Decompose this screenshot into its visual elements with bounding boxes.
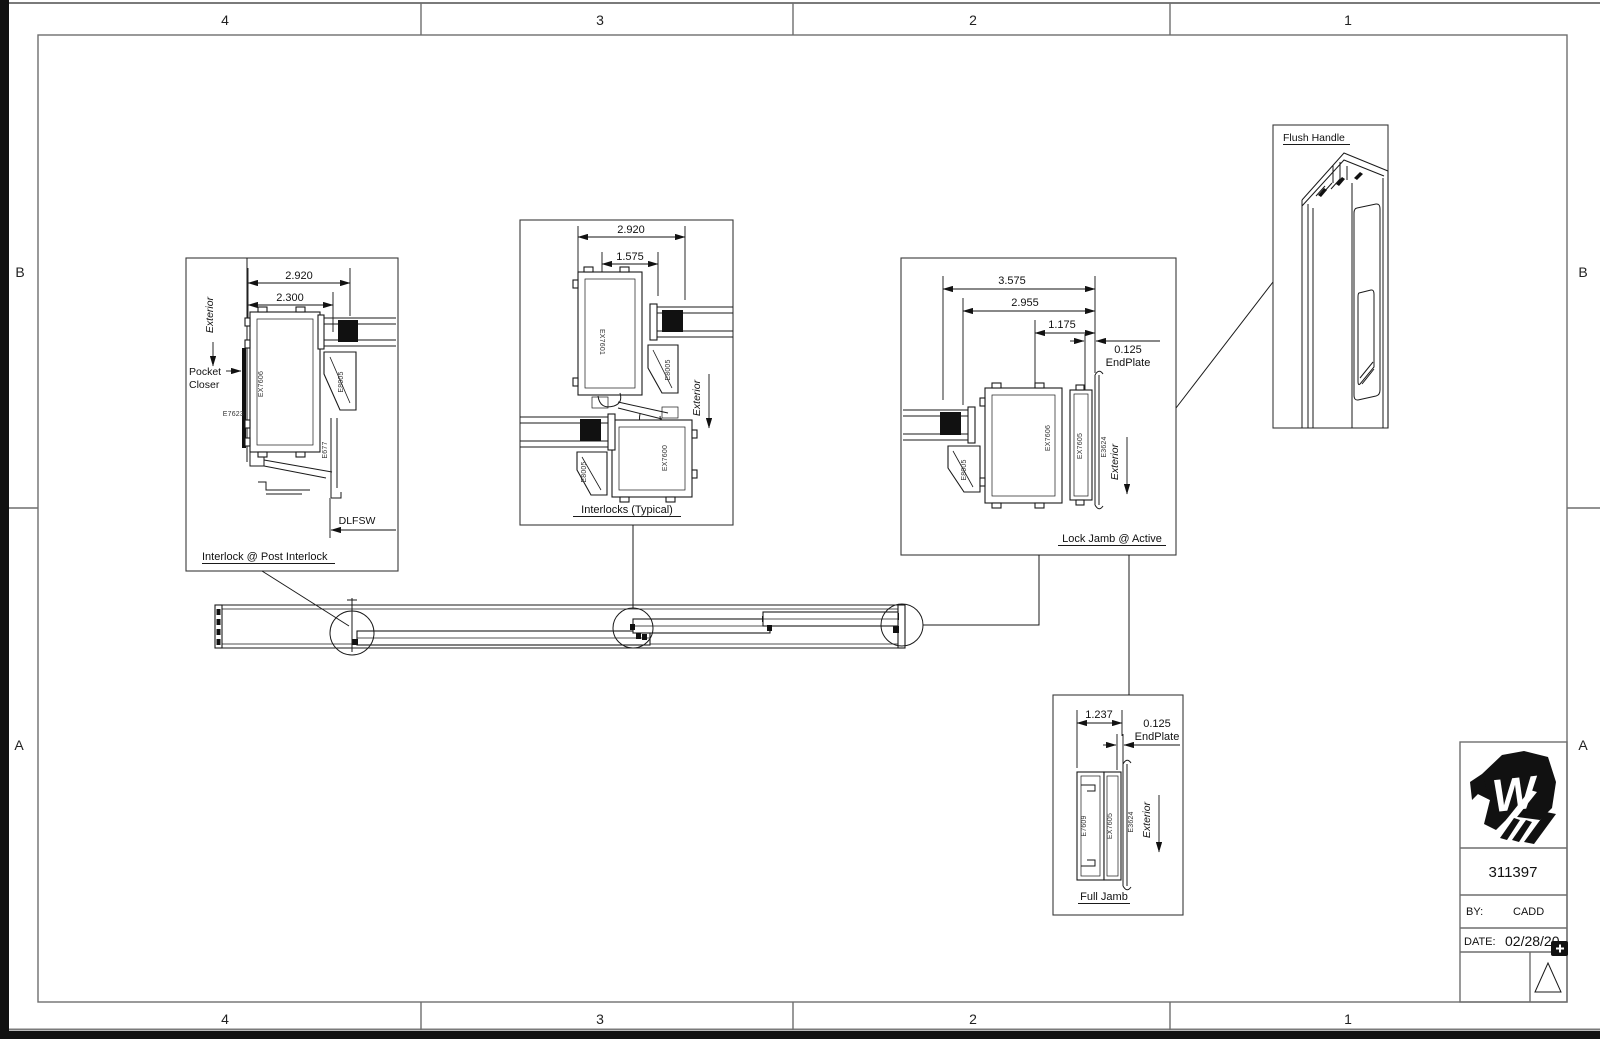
detail-post-interlock: 2.920 2.300 Exterior EX7606 E8005 E677 P…	[186, 258, 398, 571]
dim-lock-mid: 2.955	[1011, 297, 1039, 309]
zone-right-b: B	[1578, 264, 1587, 280]
drawing-sheet: 4 3 2 1 4 3 2 1 B A B A 2.920 2.300 Exte…	[0, 0, 1600, 1039]
part-label-e677: E677	[322, 441, 329, 458]
part-label-e7609: E7609	[1081, 815, 1088, 836]
part-label-e3624-lock: E3624	[1101, 436, 1108, 457]
by-value: CADD	[1513, 906, 1544, 918]
drawing-number: 311397	[1489, 864, 1538, 881]
plan-panel-1	[352, 631, 650, 645]
company-logo: W	[1470, 751, 1556, 844]
part-label-ex7600: EX7600	[662, 445, 669, 471]
endplate-label-fulljamb: EndPlate	[1135, 731, 1180, 743]
dim-fulljamb-overall: 1.237	[1085, 709, 1113, 721]
page-bottom-edge	[0, 1031, 1600, 1039]
pocket-closer-line1: Pocket	[189, 366, 221, 378]
detail-title-full-jamb: Full Jamb	[1080, 891, 1128, 903]
exterior-label-post: Exterior	[204, 296, 216, 333]
zone-labels: 4 3 2 1 4 3 2 1 B A B A	[14, 12, 1588, 1027]
part-label-ex7606: EX7606	[258, 371, 265, 397]
date-label: DATE:	[1464, 936, 1496, 948]
part-label-e8005-bottom: E8005	[581, 461, 588, 482]
zone-left-b: B	[15, 264, 24, 280]
cursor-icon	[1551, 941, 1568, 956]
part-label-ex7601: EX7601	[598, 329, 605, 355]
detail-interlocks-typical: 2.920 1.575 EX7601 E8005 EX7600	[520, 220, 733, 525]
zone-bottom-4: 4	[221, 1011, 229, 1027]
detail-lock-jamb: 3.575 2.955 1.175 0.125 EndPlate E8005 E…	[901, 258, 1176, 555]
flush-handle-isometric	[1302, 153, 1388, 428]
pocket-closer-line2: Closer	[189, 379, 220, 391]
plan-view	[215, 598, 923, 655]
detail-title-flush-handle: Flush Handle	[1283, 132, 1345, 144]
part-label-e3624-fulljamb: E3624	[1128, 811, 1135, 832]
dim-lock-inner: 1.175	[1048, 319, 1076, 331]
part-label-ex7605-lock: EX7605	[1077, 433, 1084, 459]
dlfsw-label: DLFSW	[339, 515, 376, 527]
dim-post-overall: 2.920	[285, 270, 313, 282]
endplate-value-fulljamb: 0.125	[1143, 718, 1171, 730]
detail-title-interlocks-typical: Interlocks (Typical)	[581, 504, 673, 516]
zone-bottom-2: 2	[969, 1011, 977, 1027]
endplate-value-lock: 0.125	[1114, 344, 1142, 356]
part-label-ex7605-fulljamb: EX7605	[1107, 813, 1114, 839]
part-label-e8005-post: E8005	[338, 371, 345, 392]
detail-full-jamb: 1.237 0.125 EndPlate E7609 EX7605 E3624 …	[1053, 695, 1183, 915]
dim-lock-overall: 3.575	[998, 275, 1026, 287]
zone-bottom-1: 1	[1344, 1011, 1352, 1027]
plan-panel-3	[763, 612, 898, 631]
zone-top-1: 1	[1344, 12, 1352, 28]
zone-left-a: A	[14, 737, 24, 753]
part-label-e8005-lock: E8005	[961, 459, 968, 480]
zone-top-3: 3	[596, 12, 604, 28]
detail-flush-handle: Flush Handle	[1273, 125, 1388, 428]
sheet-border	[9, 3, 1600, 1030]
revision-triangle	[1535, 963, 1561, 992]
zone-bottom-3: 3	[596, 1011, 604, 1027]
exterior-label-typ: Exterior	[691, 379, 703, 416]
page-left-edge	[0, 0, 9, 1039]
endplate-label-lock: EndPlate	[1106, 357, 1151, 369]
zone-right-a: A	[1578, 737, 1588, 753]
detail-title-post-interlock: Interlock @ Post Interlock	[202, 551, 328, 563]
part-label-e7623: E7623	[223, 411, 244, 418]
exterior-label-fulljamb: Exterior	[1141, 801, 1153, 838]
zone-top-4: 4	[221, 12, 229, 28]
by-label: BY:	[1466, 906, 1483, 918]
exterior-label-lock: Exterior	[1109, 443, 1121, 480]
part-label-ex7606-lock: EX7606	[1045, 425, 1052, 451]
cad-drawing: 4 3 2 1 4 3 2 1 B A B A 2.920 2.300 Exte…	[0, 0, 1600, 1039]
part-label-e8005-top: E8005	[665, 359, 672, 380]
dim-typ-inner: 1.575	[616, 251, 644, 263]
detail-title-lock-jamb: Lock Jamb @ Active	[1062, 533, 1162, 545]
title-block: W 311397 BY: CADD DATE: 02/28/20	[1460, 742, 1568, 1002]
dim-typ-overall: 2.920	[617, 224, 645, 236]
zone-top-2: 2	[969, 12, 977, 28]
dim-post-inner: 2.300	[276, 292, 304, 304]
